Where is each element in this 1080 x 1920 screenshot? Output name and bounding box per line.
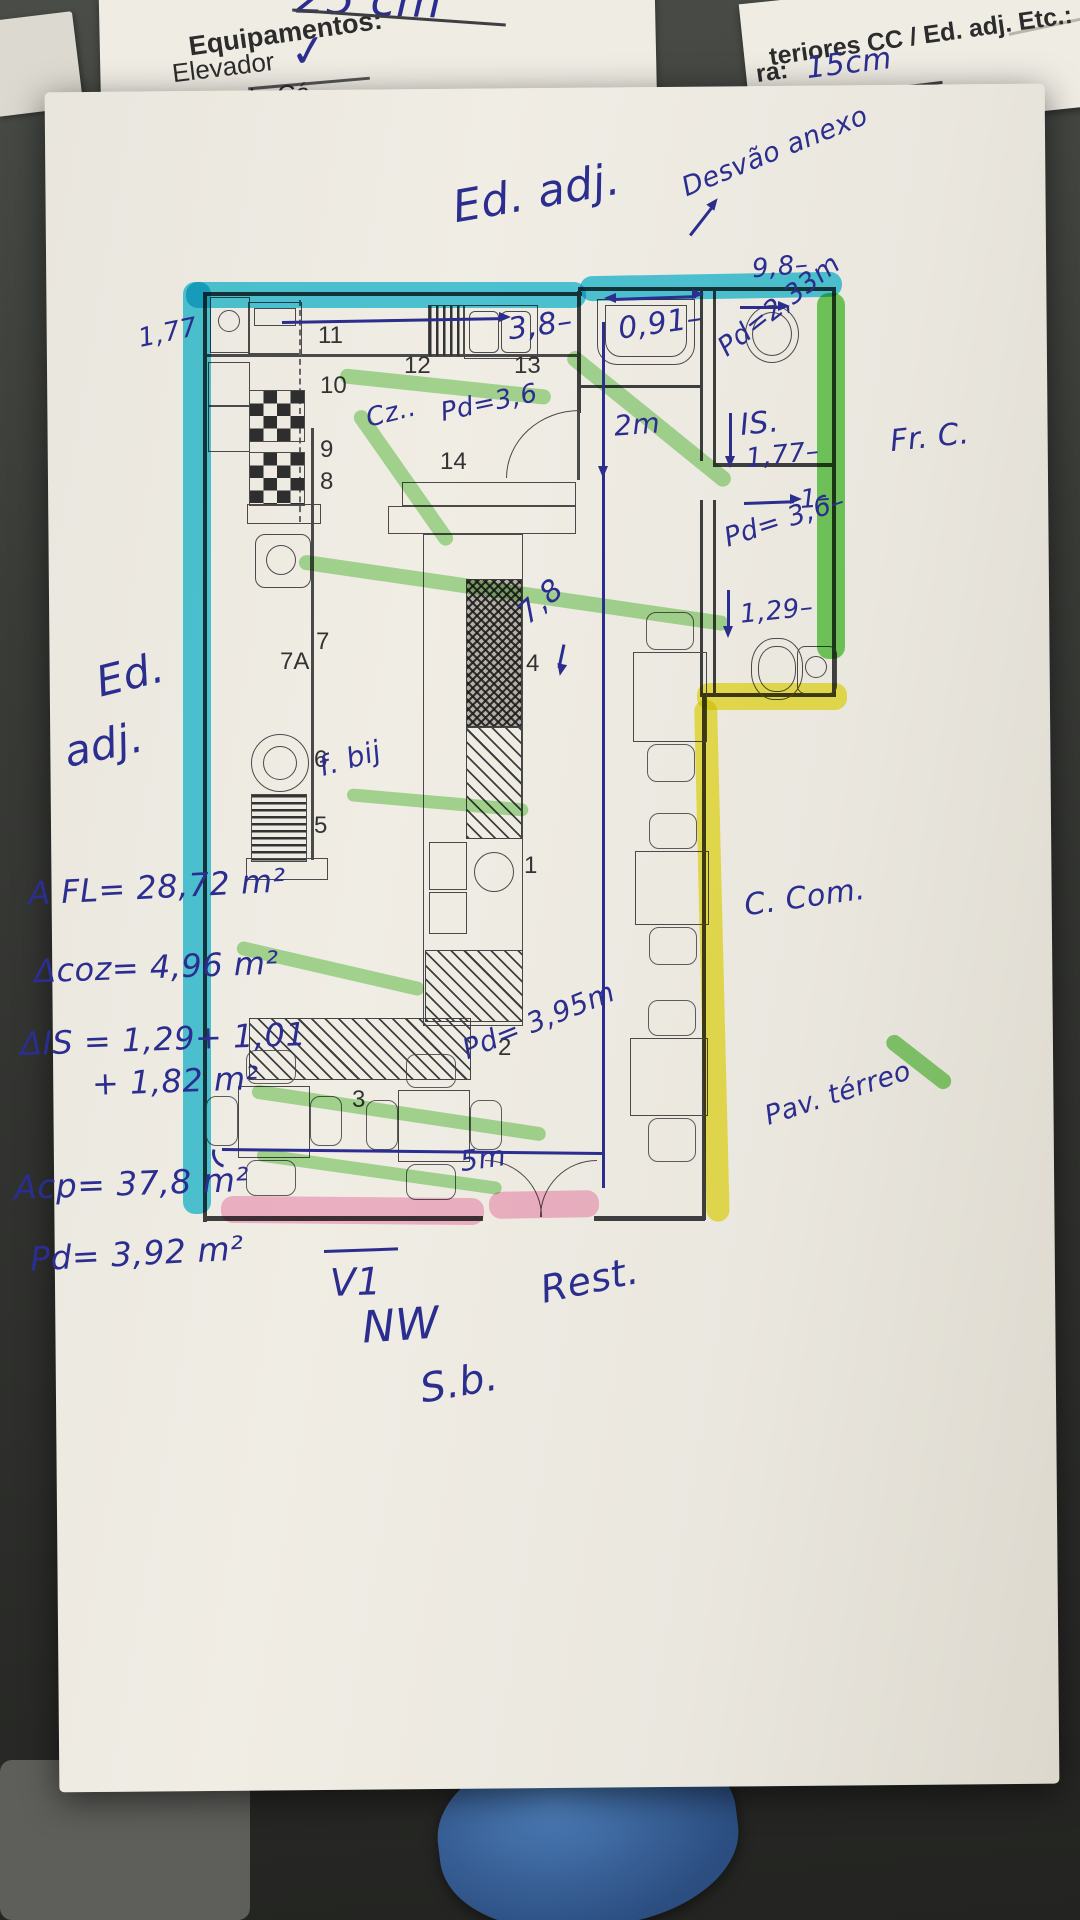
annotation-area-is2: + 1,82 m²: [91, 1059, 259, 1103]
form-right-field-label: ra:: [754, 56, 790, 89]
arrowhead: [604, 293, 616, 303]
wall-is-left-upper: [713, 291, 716, 463]
vent-grate: [428, 305, 464, 357]
highlight-green-band: [817, 293, 845, 659]
room-number: 7A: [280, 648, 309, 676]
equipment-grid-2: [249, 452, 305, 506]
arrowhead: [692, 289, 704, 299]
chair: [648, 1000, 696, 1036]
annotation-nw: NW: [360, 1297, 441, 1353]
chair: [649, 927, 697, 965]
room-number: 4: [526, 650, 539, 678]
measure-line-vertical: [602, 322, 605, 1188]
bar-box-1: [429, 842, 467, 890]
highlight-cyan-top: [186, 282, 586, 308]
equipment-grid-1: [249, 390, 305, 442]
wall-unit-2: [208, 406, 250, 452]
left-sink-bowl: [266, 545, 296, 575]
highlight-pink-left: [221, 1196, 484, 1225]
annotation-2m: 2m: [613, 406, 661, 442]
highlight-yellow-horizontal: [697, 683, 847, 710]
wall-unit-1: [208, 362, 250, 406]
room-number: 8: [320, 468, 333, 496]
room-number: 14: [440, 448, 467, 476]
left-counter-line: [311, 428, 314, 860]
room-number: 5: [314, 812, 327, 840]
room-number: 7: [316, 628, 329, 656]
annotation-area-cp: Acp= 37,8 m²: [13, 1160, 249, 1207]
chair: [649, 813, 697, 849]
annotation-v1: V1: [329, 1259, 382, 1305]
door-leaf-kitchen: [577, 410, 580, 480]
hatch-counter-vertical: [425, 950, 523, 1022]
room-number: 13: [514, 352, 541, 380]
annotation-is: IS.: [738, 404, 780, 443]
hatch-strip-mid: [466, 727, 522, 839]
corner-appliance-dial: [218, 310, 240, 332]
room-number: 9: [320, 436, 333, 464]
chair: [647, 744, 695, 782]
table: [630, 1038, 708, 1116]
corner-basin-bowl: [805, 656, 827, 678]
chair: [648, 1118, 696, 1162]
photo-stage: 25 cm Equipamentos: Elevador ✓ Rede de C…: [0, 0, 1080, 1920]
room-number: 1: [524, 852, 537, 880]
annotation-5m: 5m: [458, 1139, 508, 1178]
wall-bottom-right: [594, 1216, 705, 1221]
round-fixture-6-inner: [263, 746, 297, 780]
arrowhead: [723, 626, 733, 638]
counter-ledge: [247, 504, 321, 524]
arrowhead: [598, 466, 608, 478]
bar-circle: [474, 852, 514, 892]
arrowhead: [725, 456, 735, 468]
form-check-mark: ✓: [287, 24, 331, 80]
highlight-pink-right: [489, 1190, 599, 1219]
room-number: 11: [318, 322, 343, 350]
wall-is-left-lower: [713, 500, 716, 696]
bar-box-2: [429, 892, 467, 934]
grill-5: [251, 794, 307, 862]
